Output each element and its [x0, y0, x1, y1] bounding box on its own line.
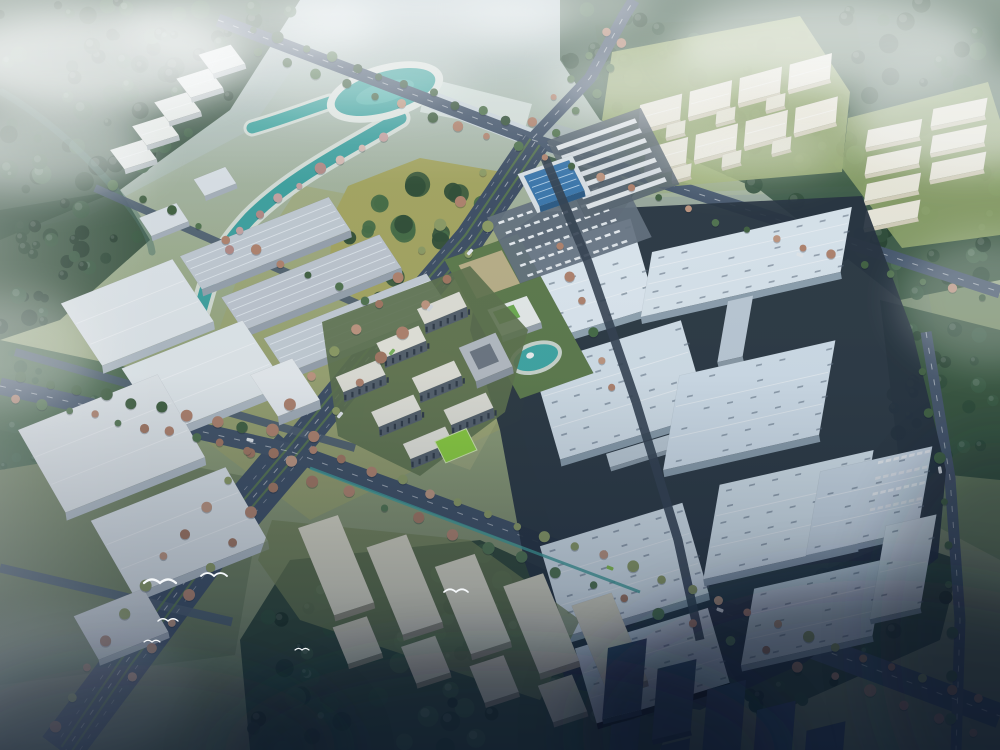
aerial-render-image — [0, 0, 1000, 750]
industrial-park-aerial-scene — [0, 0, 1000, 750]
atmosphere — [0, 0, 1000, 750]
